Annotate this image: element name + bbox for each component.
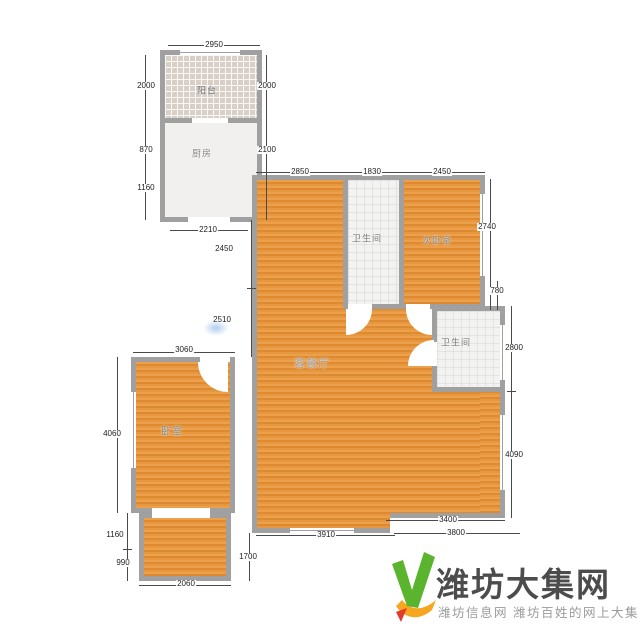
label-bedroom-secondary: 次卧室	[422, 234, 452, 247]
dim-line	[266, 55, 267, 220]
dim-right-bottom-lower: 3800	[446, 529, 466, 537]
dim-entry-width: 2060	[176, 580, 196, 588]
dim-tick	[507, 391, 516, 392]
dim-entry-step: 1700	[238, 553, 258, 561]
site-logo: 潍坊大集网 潍坊信息网 潍坊百姓的网上大集	[388, 548, 640, 636]
dim-tick	[123, 549, 132, 550]
dim-bottom-left-upper: 1160	[105, 531, 124, 539]
dim-mid-left-upper: 2450	[214, 245, 234, 253]
label-kitchen: 厨房	[192, 147, 212, 160]
dim-kitchen-right: 2100	[257, 146, 277, 154]
window-balcony	[180, 50, 240, 55]
dim-living-bottom: 3910	[316, 531, 336, 539]
dim-balcony-right: 2000	[257, 82, 277, 90]
room-kitchen	[160, 118, 262, 222]
dim-kitchen-left-upper: 870	[138, 146, 153, 154]
dim-top-width: 2950	[204, 41, 224, 49]
label-living-dining: 客餐厅	[294, 355, 330, 371]
dim-balcony-left: 2000	[136, 82, 156, 90]
window-bedroom	[131, 392, 136, 468]
label-balcony: 阳台	[197, 84, 217, 97]
dim-line	[145, 55, 146, 220]
room-entry	[139, 513, 231, 581]
dim-kitchen-left-lower: 1160	[136, 184, 155, 192]
dim-bedroom-height: 4060	[102, 430, 122, 438]
door-balcony-kitchen	[192, 118, 228, 123]
door-kitchen	[188, 217, 230, 222]
dim-right-bottom-upper: 3400	[438, 516, 458, 524]
faint-watermark	[203, 320, 229, 336]
dim-kitchen-bottom: 2210	[198, 226, 218, 234]
dim-tick	[247, 288, 256, 289]
dim-right-lower-height: 4090	[504, 451, 524, 459]
dim-bedroom-width: 3060	[174, 346, 194, 354]
window-bathroom-right	[500, 325, 505, 380]
v-check-icon	[388, 548, 438, 628]
label-bathroom-top: 卫生间	[352, 232, 382, 245]
dim-bedroom2-width: 2450	[432, 168, 452, 176]
dim-bottom-left-lower: 990	[115, 559, 130, 567]
label-bathroom-right: 卫生间	[441, 336, 471, 349]
logo-title: 潍坊大集网	[436, 558, 611, 606]
room-bathroom-right	[432, 306, 505, 392]
dim-bath-top-width: 1830	[362, 168, 382, 176]
window-bedroom-secondary	[480, 194, 485, 276]
dim-line	[127, 513, 128, 581]
label-bedroom: 卧室	[161, 423, 183, 438]
floorplan-page: 2950 2000 2000 870 1160 2100 2210 2850 1…	[0, 0, 640, 640]
door-entry	[152, 508, 210, 518]
dim-living-top: 2850	[290, 168, 310, 176]
dim-bath-right-height: 2800	[504, 344, 524, 352]
dim-bedroom2-height: 2740	[477, 223, 497, 231]
dim-line	[511, 306, 512, 518]
dim-right-gap: 780	[489, 287, 504, 295]
logo-tagline: 潍坊信息网 潍坊百姓的网上大集	[438, 602, 639, 621]
